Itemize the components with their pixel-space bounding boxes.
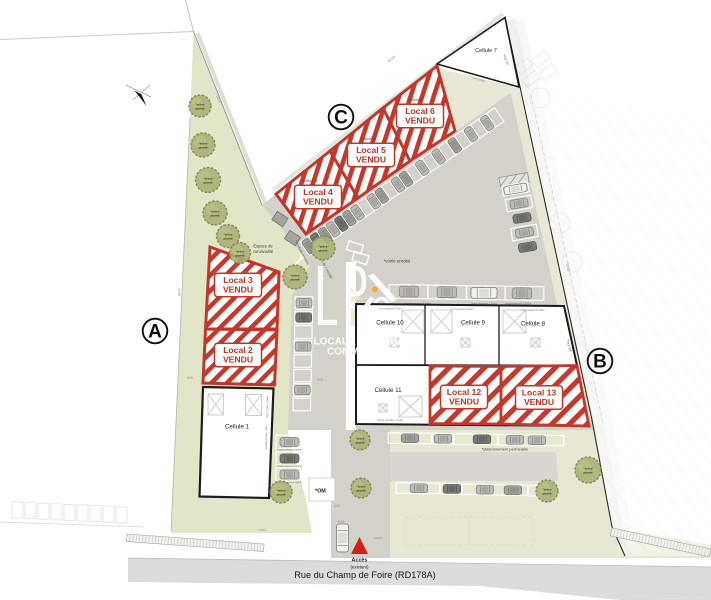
svg-text:planté: planté (355, 440, 364, 444)
svg-text:VENDU: VENDU (356, 155, 386, 165)
svg-text:Local 4: Local 4 (303, 187, 333, 197)
svg-text:planté: planté (290, 277, 299, 281)
svg-text:*mur isolement 20cm: *mur isolement 20cm (450, 308, 473, 311)
svg-text:planté: planté (583, 470, 592, 474)
svg-text:Cellule 11: Cellule 11 (374, 387, 402, 394)
svg-text:Local 3: Local 3 (223, 275, 253, 285)
svg-text:Accès: Accès (352, 558, 368, 564)
svg-text:planté: planté (195, 106, 204, 110)
svg-text:planté: planté (235, 253, 244, 257)
svg-text:*mur isolement 20cm: *mur isolement 20cm (378, 308, 401, 311)
svg-text:4.00: 4.00 (187, 376, 193, 380)
svg-text:Cellule 1: Cellule 1 (225, 424, 250, 431)
svg-text:Local 5: Local 5 (356, 145, 386, 155)
svg-text:*stationnement permeable: *stationnement permeable (482, 447, 529, 452)
svg-text:*voile + béton banché: *voile + béton banché (265, 424, 269, 450)
svg-text:- 76.88 -: - 76.88 - (177, 286, 182, 299)
svg-text:Local 2: Local 2 (223, 345, 253, 355)
svg-text:planté: planté (318, 248, 327, 252)
svg-text:A: A (148, 322, 162, 343)
svg-text:Local 6: Local 6 (405, 106, 435, 116)
svg-text:VENDU: VENDU (223, 355, 253, 365)
svg-text:Espace de: Espace de (253, 244, 273, 249)
svg-text:*1.50m: *1.50m (257, 528, 267, 532)
svg-text:VENDU: VENDU (524, 397, 554, 407)
svg-text:Cellule 9: Cellule 9 (461, 320, 486, 327)
svg-text:Cellule 8: Cellule 8 (521, 321, 546, 328)
svg-text:convivialité: convivialité (253, 249, 274, 254)
svg-text:Cellule 4: Cellule 4 (303, 179, 318, 183)
svg-text:planté: planté (542, 491, 551, 495)
svg-text:planté: planté (198, 145, 207, 149)
svg-text:VENDU: VENDU (303, 197, 333, 207)
svg-text:Local 12: Local 12 (447, 387, 482, 397)
svg-text:5.00: 5.00 (338, 520, 344, 524)
svg-text:*accès boutique 2.5x3m: *accès boutique 2.5x3m (377, 419, 404, 422)
svg-text:COMMERCES: COMMERCES (327, 347, 393, 358)
svg-text:*seuil + haut 2.30m: *seuil + haut 2.30m (266, 396, 270, 418)
svg-text:VENDU: VENDU (223, 285, 253, 295)
svg-text:*voirie enrobé: *voirie enrobé (384, 259, 411, 264)
svg-text:VENDU: VENDU (405, 116, 435, 126)
svg-text:planté: planté (223, 236, 232, 240)
svg-text:Cellule 6: Cellule 6 (408, 98, 423, 102)
svg-text:*mur isolement 20cm: *mur isolement 20cm (521, 309, 544, 312)
svg-text:VENDU: VENDU (449, 397, 479, 407)
svg-text:- 69.09 -: - 69.09 - (372, 536, 383, 540)
svg-text:Cellule 7: Cellule 7 (475, 48, 497, 54)
svg-text:planté: planté (203, 180, 212, 184)
svg-text:*stationnement éteinte: *stationnement éteinte (277, 448, 302, 451)
svg-text:planté: planté (356, 488, 365, 492)
svg-text:Cellule 5: Cellule 5 (360, 137, 375, 141)
svg-text:5.00: 5.00 (317, 378, 323, 382)
svg-text:Local 13: Local 13 (522, 387, 557, 397)
svg-text:C: C (334, 108, 348, 129)
svg-text:B: B (593, 352, 607, 373)
svg-text:Rue du Champ de Foire (RD178A): Rue du Champ de Foire (RD178A) (294, 570, 435, 580)
svg-text:Cellule 10: Cellule 10 (376, 320, 404, 327)
svg-text:(existant): (existant) (350, 565, 369, 570)
svg-text:*OM: *OM (315, 489, 326, 495)
svg-text:4.00: 4.00 (334, 504, 340, 508)
svg-text:planté: planté (210, 213, 219, 217)
svg-text:planté: planté (276, 492, 285, 496)
